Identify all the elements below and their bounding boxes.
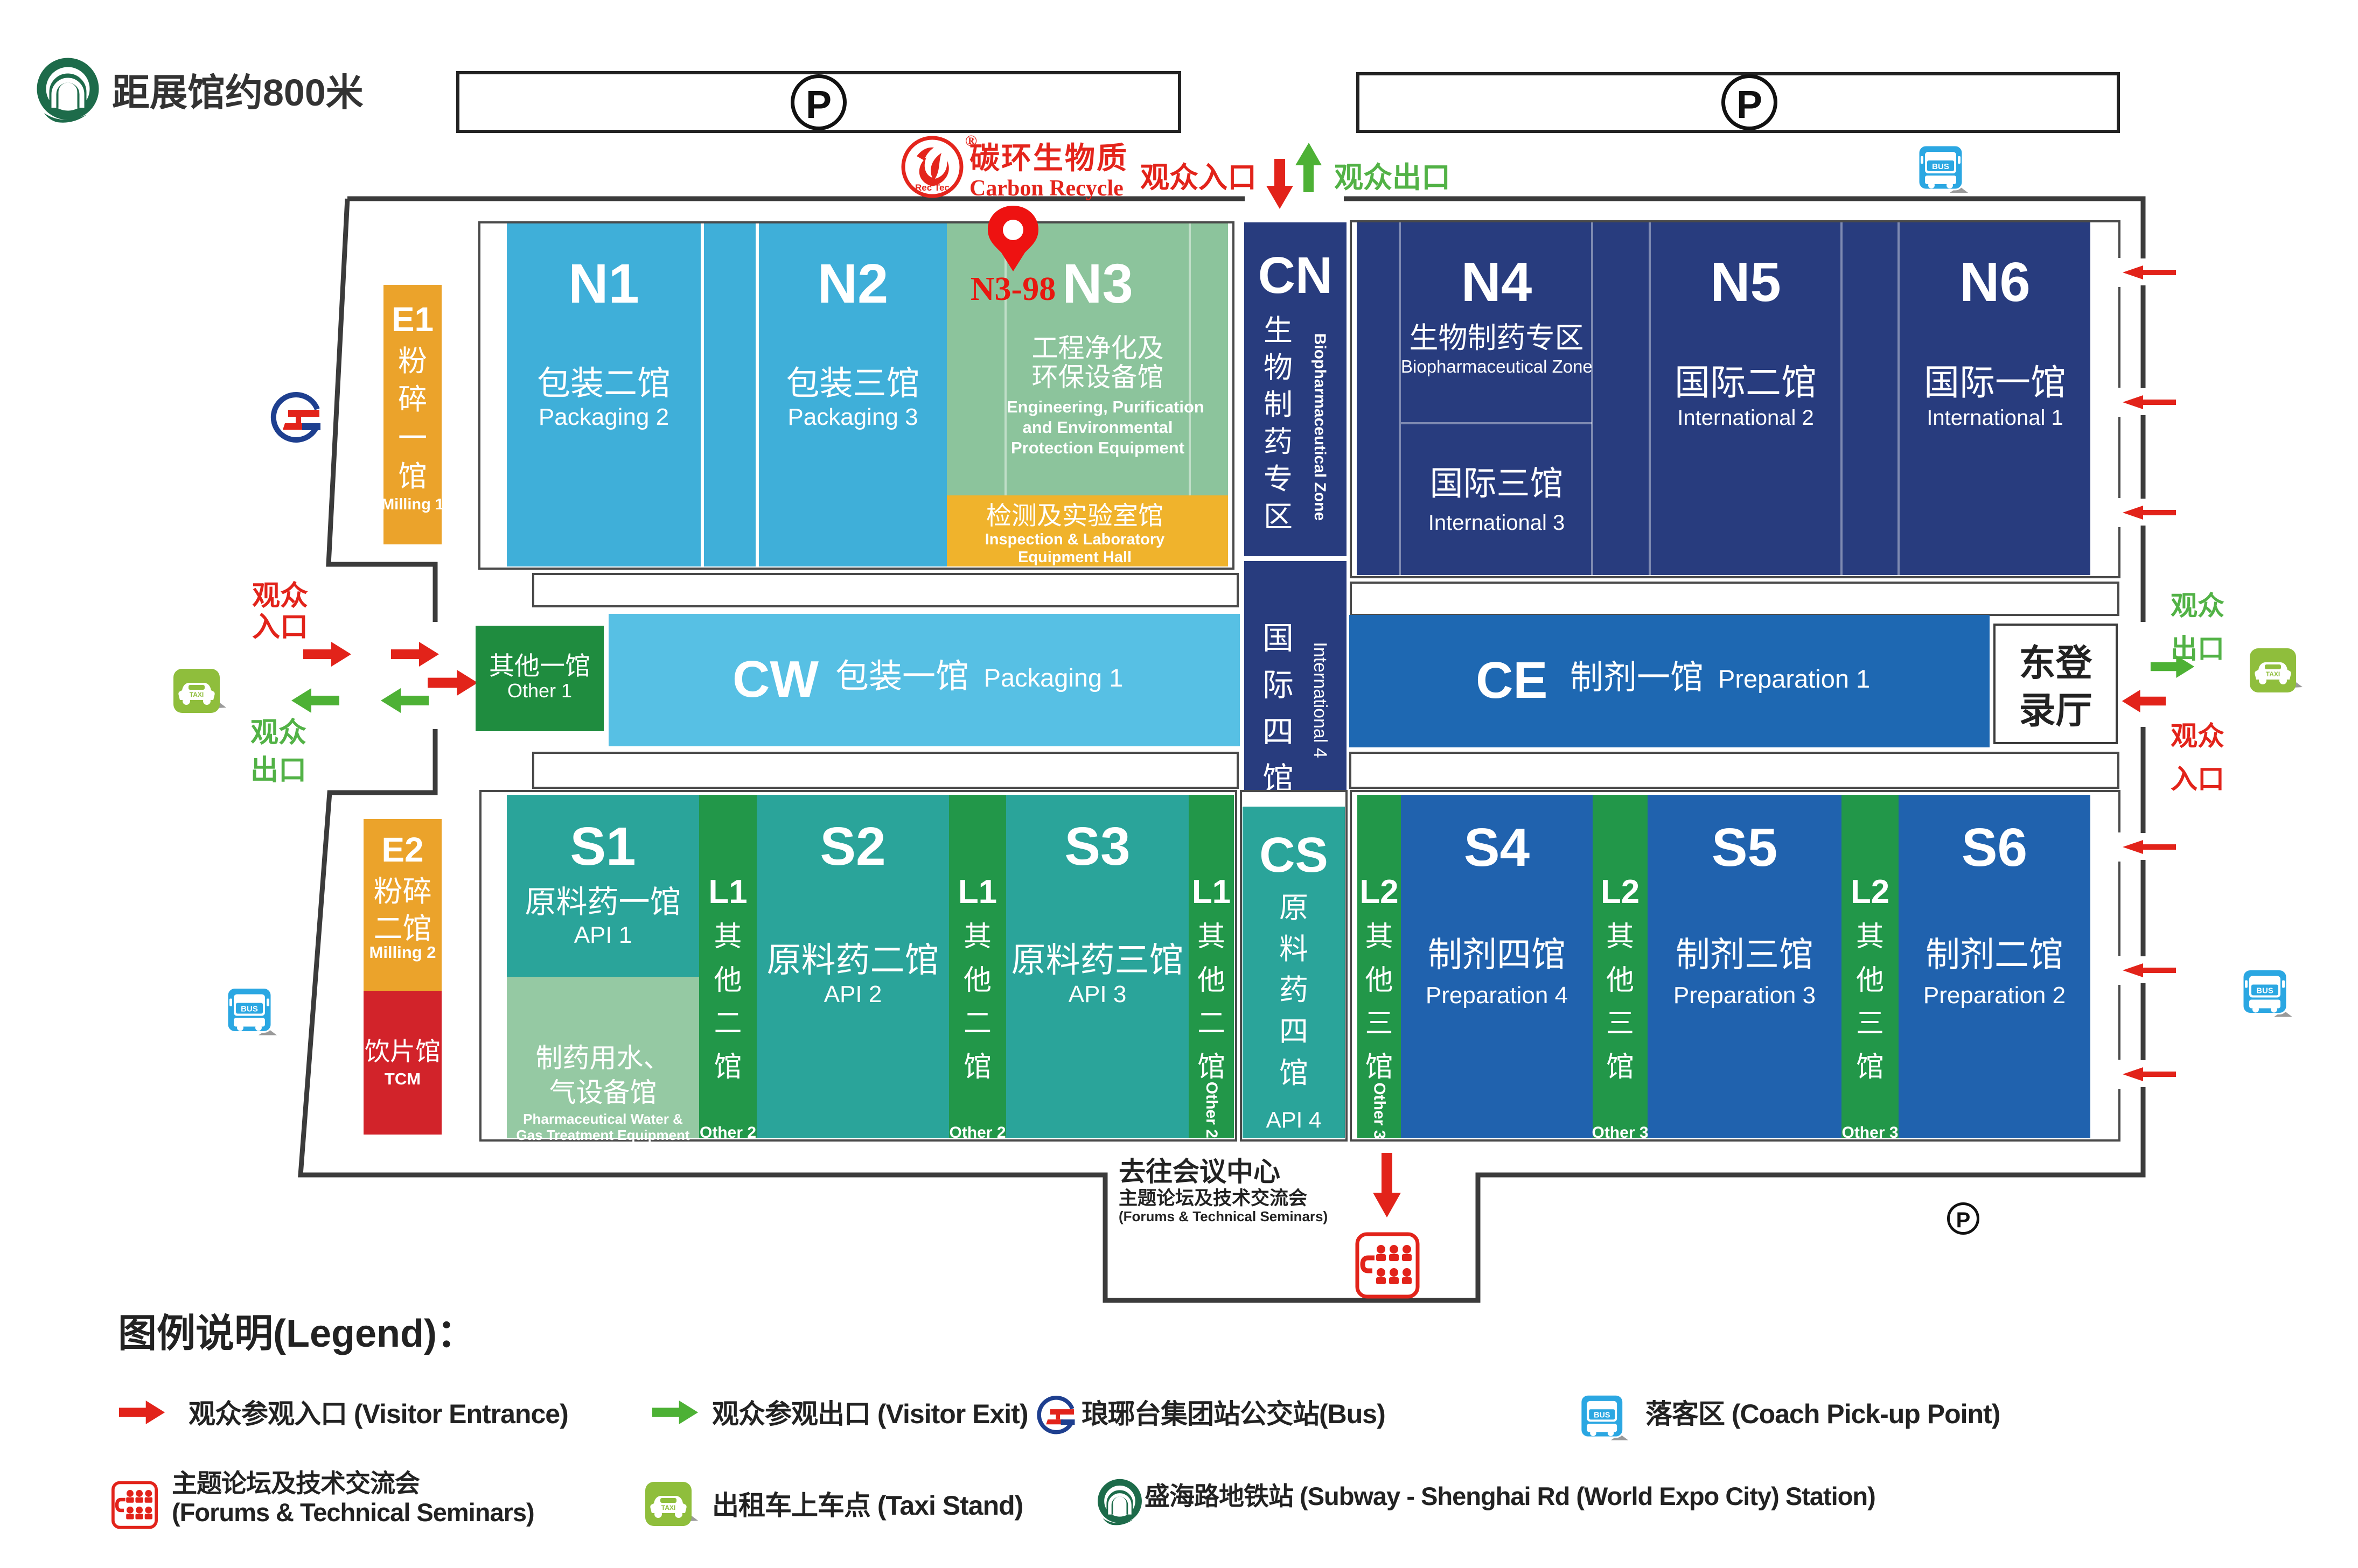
svg-text:TAXI: TAXI xyxy=(190,691,204,698)
svg-text:BUS: BUS xyxy=(2256,986,2273,996)
svg-text:BUS: BUS xyxy=(241,1005,258,1014)
svg-text:TAXI: TAXI xyxy=(661,1504,675,1511)
svg-text:BUS: BUS xyxy=(1932,162,1949,171)
svg-text:BUS: BUS xyxy=(1594,1411,1610,1420)
svg-text:TAXI: TAXI xyxy=(2266,670,2280,678)
svg-text:Rec Tec: Rec Tec xyxy=(915,183,950,193)
